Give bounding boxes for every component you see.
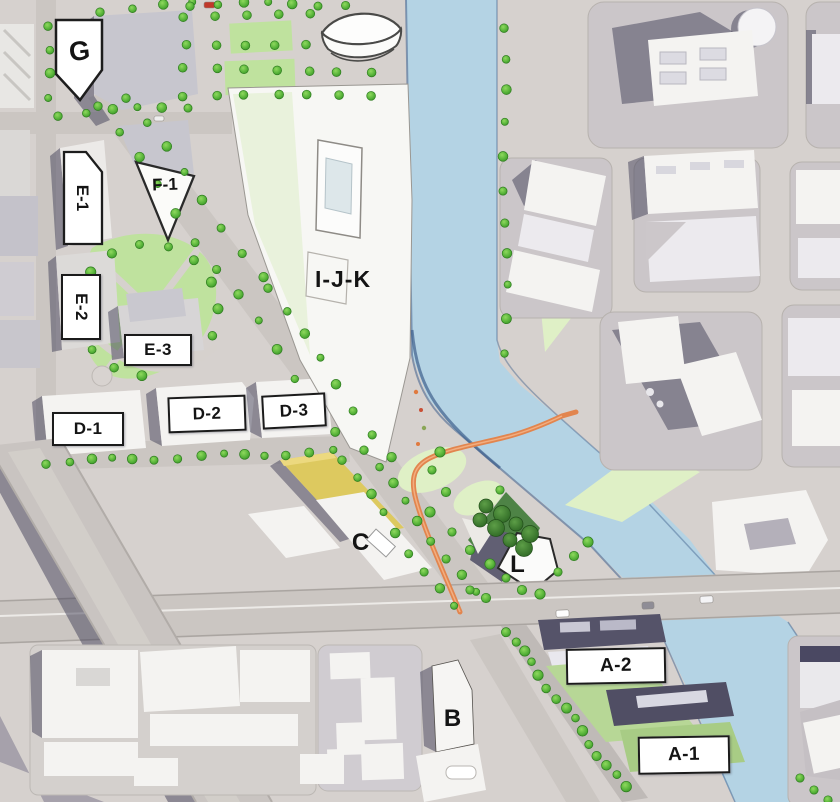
- parcel-label-d2[interactable]: D-2: [167, 395, 246, 434]
- parcel-label-e1[interactable]: E-1: [66, 156, 99, 240]
- parcel-label-d3[interactable]: D-3: [261, 392, 327, 429]
- parcel-label-c[interactable]: C: [346, 528, 376, 558]
- parcel-label-l[interactable]: L: [504, 550, 532, 580]
- parcel-label-f1[interactable]: F-1: [142, 173, 189, 197]
- parcel-label-d1[interactable]: D-1: [52, 412, 124, 446]
- site-plan-map: [0, 0, 840, 802]
- parcel-label-b[interactable]: B: [440, 704, 466, 734]
- parcel-label-ijk[interactable]: I-J-K: [298, 264, 388, 294]
- parcel-label-a1[interactable]: A-1: [638, 735, 731, 775]
- parcel-label-g[interactable]: G: [60, 32, 99, 70]
- parcel-label-e2[interactable]: E-2: [61, 274, 101, 340]
- red-car: [204, 2, 215, 8]
- parcel-label-e3[interactable]: E-3: [124, 334, 192, 366]
- parcel-label-a2[interactable]: A-2: [566, 647, 667, 685]
- site-plan-rendering: G E-1 F-1 E-2 E-3 D-1 D-2 D-3 I-J-K C L …: [0, 0, 840, 802]
- warehouse: [42, 650, 138, 738]
